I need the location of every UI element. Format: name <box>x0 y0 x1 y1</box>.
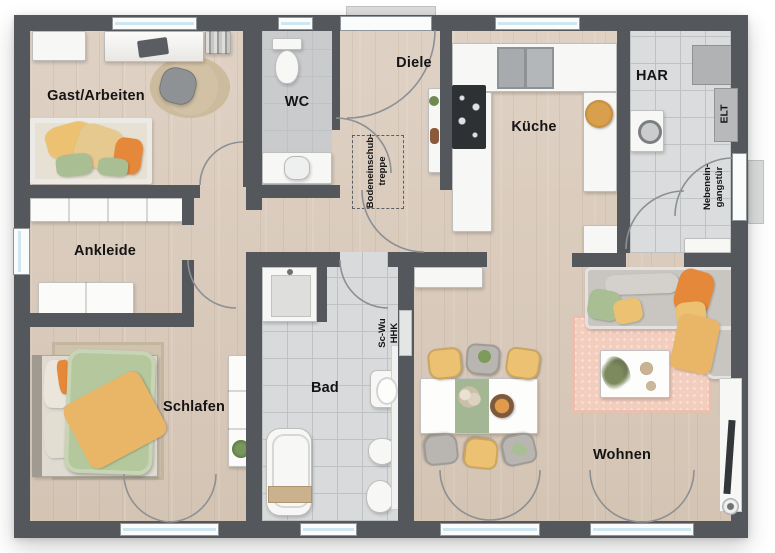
room-label-har: HAR <box>636 68 668 84</box>
side-entrance-door <box>732 153 747 221</box>
annotation-side-entrance: Nebenein- gangstür <box>702 164 726 210</box>
bath-caddy <box>268 486 312 503</box>
dining-chair <box>504 346 542 381</box>
har-cabinet <box>684 238 731 253</box>
floor-plan: Gast/Arbeiten WC Diele Küche HAR Ankleid… <box>0 0 775 553</box>
room-label-ankleide: Ankleide <box>74 243 136 259</box>
wall <box>262 252 340 267</box>
toilet-bowl <box>275 50 299 84</box>
room-label-kueche: Küche <box>511 119 556 135</box>
wardrobe <box>38 282 134 315</box>
room-label-wc: WC <box>285 94 310 110</box>
toilet <box>366 480 394 513</box>
side-entrance-step <box>748 160 764 224</box>
wall <box>572 253 626 267</box>
cooktop <box>452 85 486 149</box>
wall-left <box>14 15 30 538</box>
french-door-essen <box>440 523 540 536</box>
corner-cabinet <box>583 225 619 254</box>
french-door-schlafen <box>120 523 219 536</box>
plant <box>429 96 439 106</box>
decor-vase <box>430 128 439 144</box>
candle <box>640 362 653 375</box>
shower-tray <box>271 275 311 317</box>
wall <box>30 313 182 327</box>
wall <box>30 185 200 198</box>
french-door-wohnen <box>590 523 694 536</box>
wall <box>398 252 414 521</box>
wall <box>182 260 194 327</box>
room-label-schlafen: Schlafen <box>163 399 225 415</box>
room-label-diele: Diele <box>396 55 432 71</box>
wc-basin <box>284 156 310 180</box>
speaker <box>722 498 739 515</box>
dining-chair <box>422 432 459 466</box>
wall <box>317 267 327 322</box>
washbasin-bowl <box>376 377 398 405</box>
flower-bouquet <box>456 386 482 408</box>
kitchen-sink <box>497 47 526 89</box>
towel-radiator <box>399 310 412 356</box>
window-kueche <box>495 17 580 30</box>
entrance-door <box>340 16 432 31</box>
candle <box>646 381 656 391</box>
wall <box>243 31 262 187</box>
bed-headboard <box>32 355 42 477</box>
wardrobe <box>30 198 183 222</box>
annotation-scwu-hhk: Sc-Wu HHK <box>377 318 401 347</box>
wall <box>246 187 262 210</box>
kitchen-sink <box>525 47 554 89</box>
wall <box>332 31 340 130</box>
wall <box>684 253 731 267</box>
room-label-wohnen: Wohnen <box>593 447 651 463</box>
window-ankleide <box>13 228 30 275</box>
annotation-elt: ELT <box>718 104 731 123</box>
sideboard <box>414 267 483 288</box>
wall <box>246 252 262 521</box>
window-bad <box>300 523 357 536</box>
room-label-gast-arbeiten: Gast/Arbeiten <box>47 88 145 104</box>
shower-head <box>287 269 293 275</box>
washing-machine-door <box>638 120 662 144</box>
bookshelf <box>205 31 231 54</box>
room-label-bad: Bad <box>311 380 339 396</box>
window-gast <box>112 17 197 30</box>
wall <box>617 31 630 253</box>
wall <box>182 185 194 225</box>
plant-on-chair <box>478 350 491 363</box>
cabinet <box>32 31 86 61</box>
annotation-attic-ladder: Bodeneinschub- treppe <box>365 134 389 208</box>
window-wc <box>278 17 313 30</box>
fruit-bowl <box>585 100 613 128</box>
dining-chair <box>462 436 499 470</box>
wall <box>440 31 452 190</box>
sofa-pillow <box>97 157 128 178</box>
serving-bowl <box>490 394 514 418</box>
dining-chair <box>426 346 463 380</box>
toilet-tank <box>272 38 302 50</box>
wall <box>250 185 340 198</box>
utility-unit <box>692 45 733 85</box>
